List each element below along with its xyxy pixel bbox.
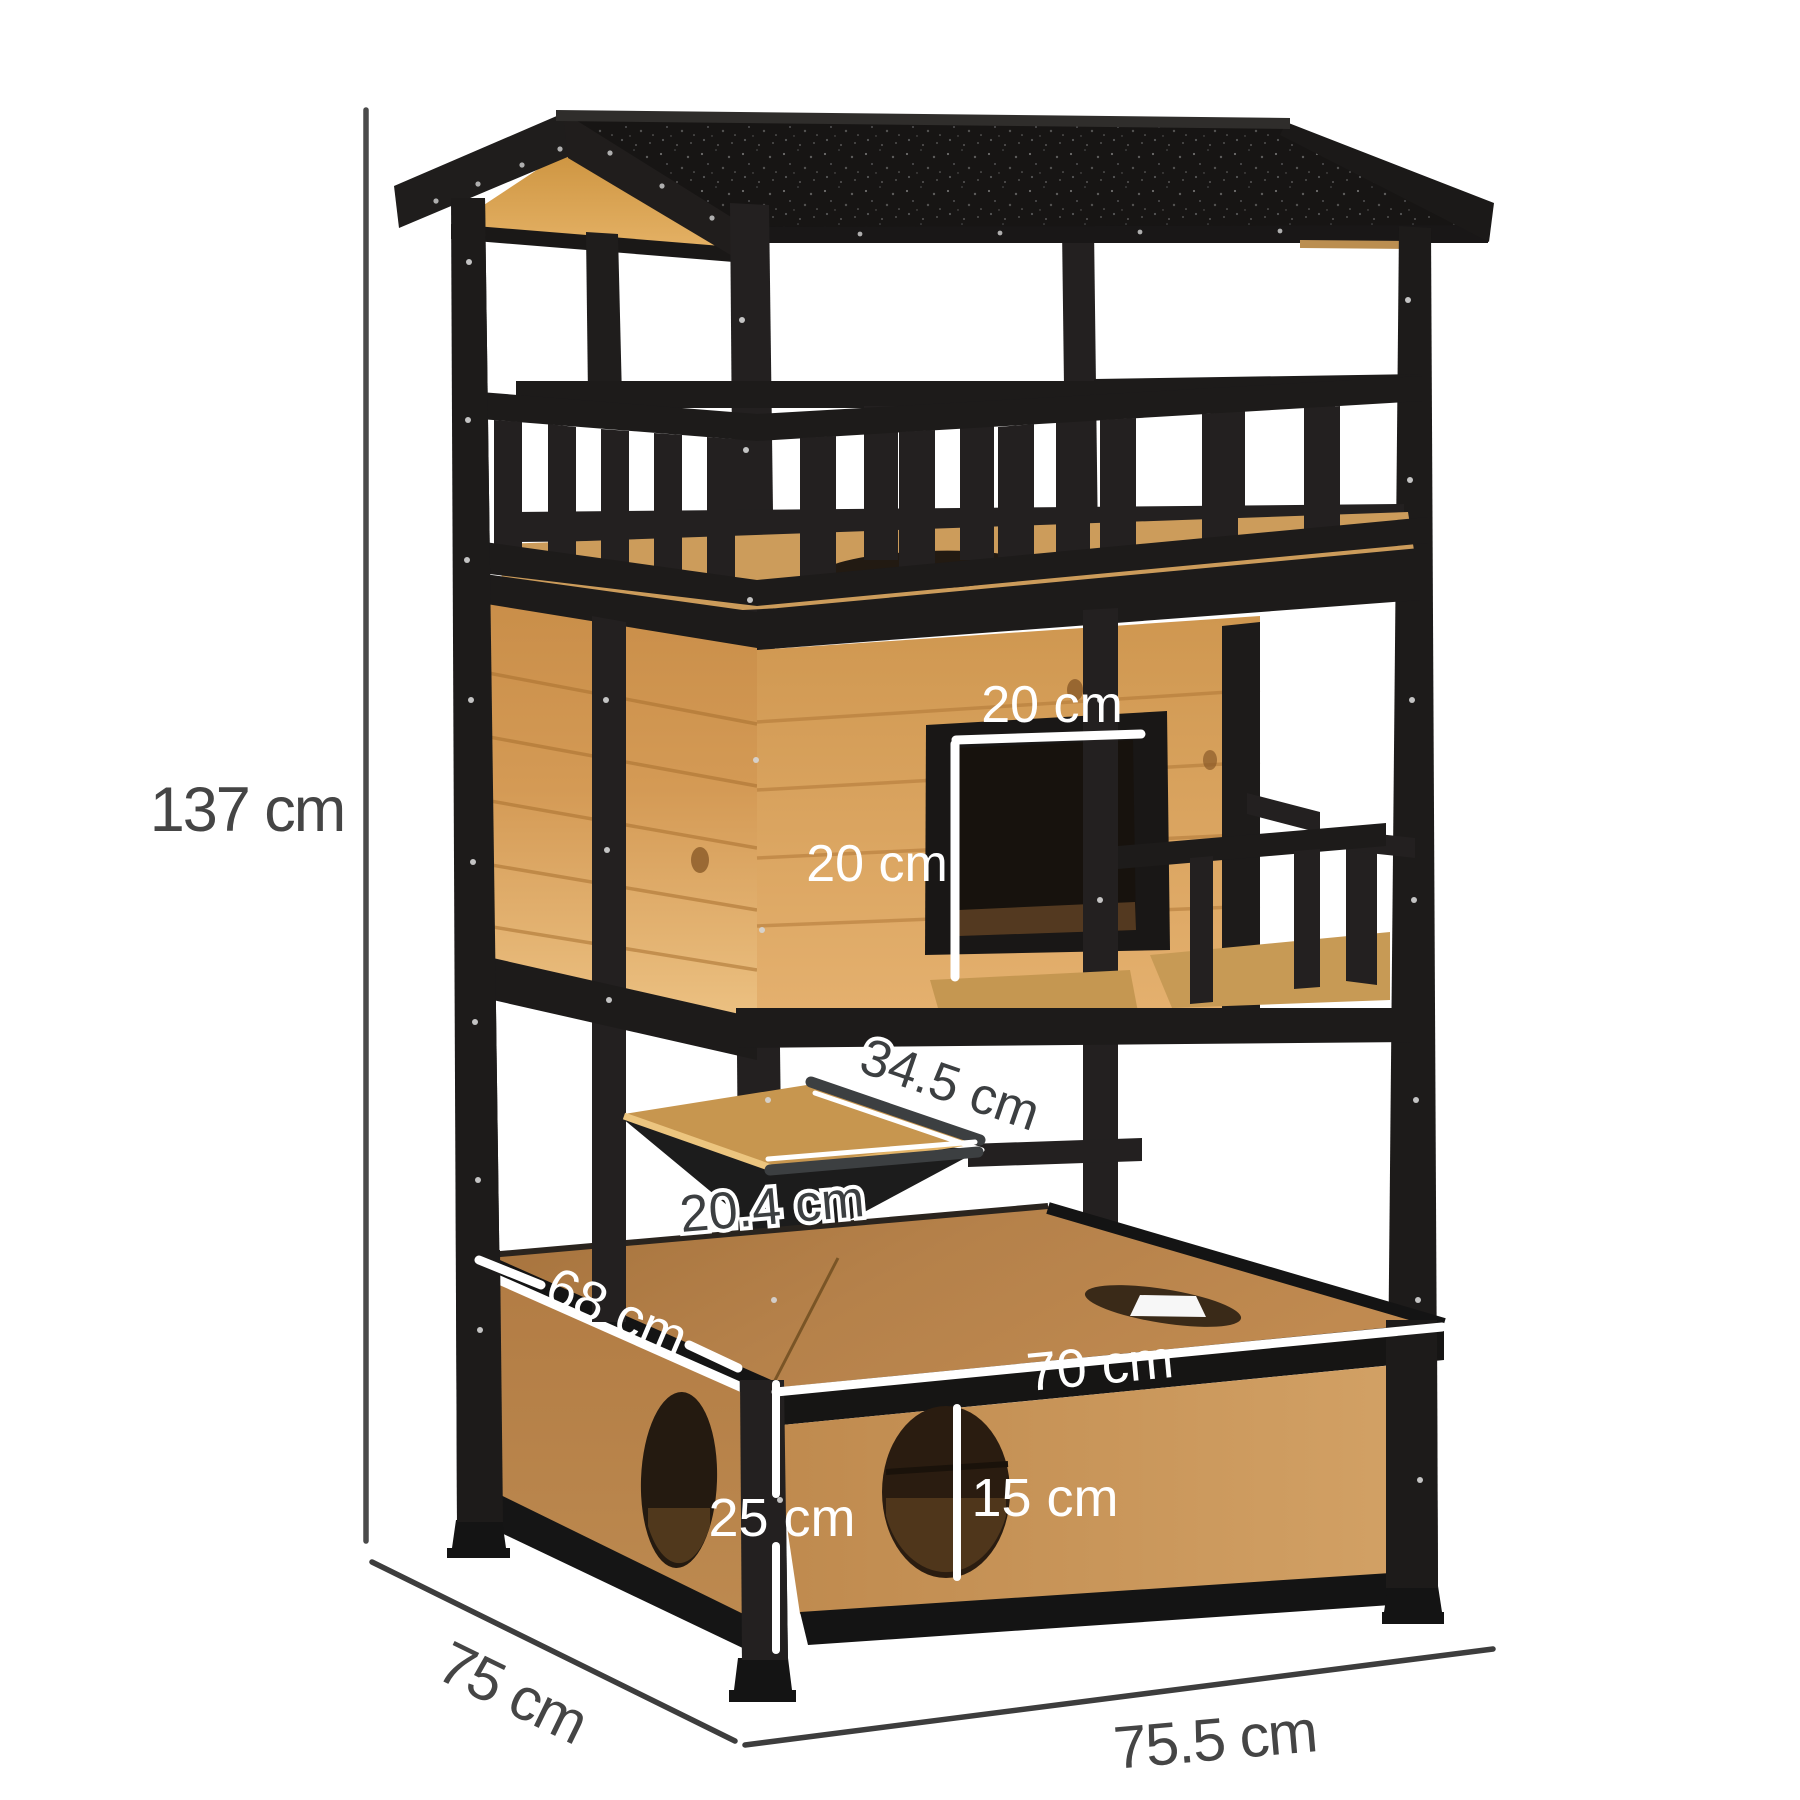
svg-text:15 cm: 15 cm [971,1468,1118,1528]
svg-text:20 cm: 20 cm [806,835,948,893]
svg-text:25 cm: 25 cm [708,1488,855,1548]
svg-text:137 cm: 137 cm [150,775,345,845]
svg-text:20 cm: 20 cm [981,676,1123,734]
